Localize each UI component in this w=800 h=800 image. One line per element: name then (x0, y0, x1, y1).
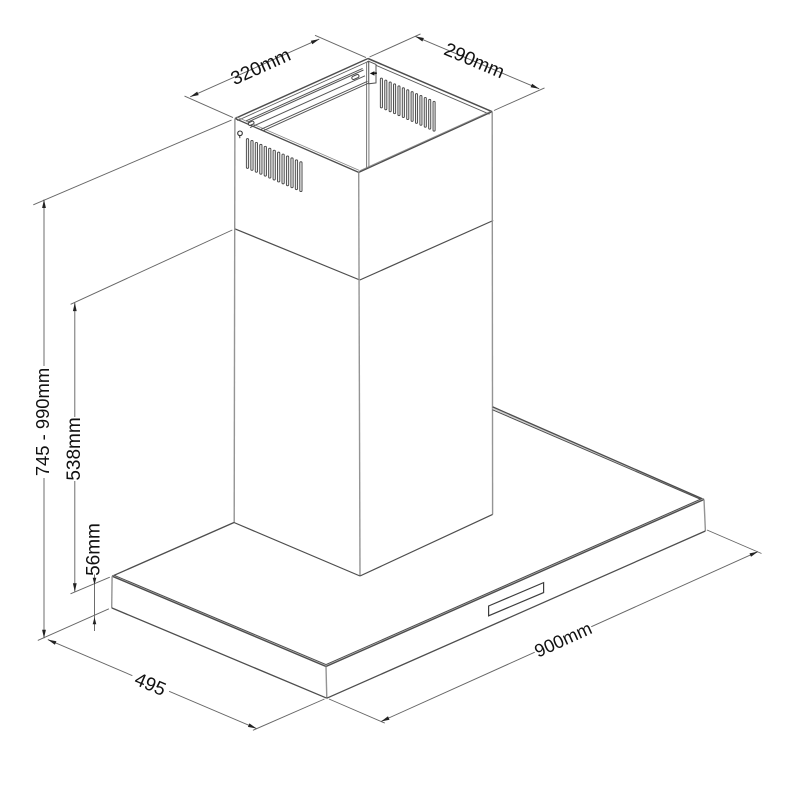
svg-text:745 - 990mm: 745 - 990mm (32, 368, 53, 476)
svg-text:538mm: 538mm (64, 417, 85, 480)
svg-text:56mm: 56mm (83, 523, 104, 576)
